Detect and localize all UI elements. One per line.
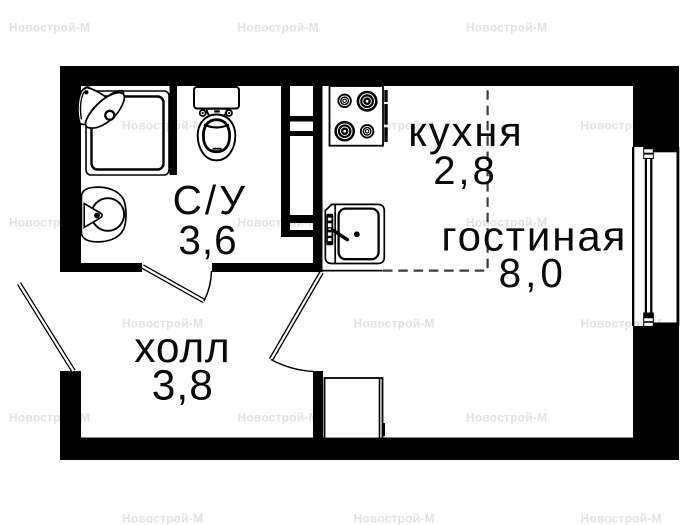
svg-text:Новострой-М: Новострой-М <box>238 21 319 35</box>
svg-text:Новострой-М: Новострой-М <box>354 317 435 331</box>
svg-text:Новострой-М: Новострой-М <box>238 411 319 425</box>
svg-text:Новострой-М: Новострой-М <box>466 411 547 425</box>
svg-text:8,0: 8,0 <box>499 250 567 296</box>
svg-text:3,6: 3,6 <box>178 217 237 263</box>
svg-text:Новострой-М: Новострой-М <box>122 512 203 525</box>
svg-text:Новострой-М: Новострой-М <box>354 512 435 525</box>
svg-text:Новострой-М: Новострой-М <box>466 21 547 35</box>
svg-text:кухня: кухня <box>408 108 524 155</box>
svg-text:3,8: 3,8 <box>152 363 214 410</box>
svg-text:Новострой-М: Новострой-М <box>9 21 90 35</box>
svg-text:Новострой-М: Новострой-М <box>581 512 662 525</box>
svg-text:2,8: 2,8 <box>433 149 498 193</box>
